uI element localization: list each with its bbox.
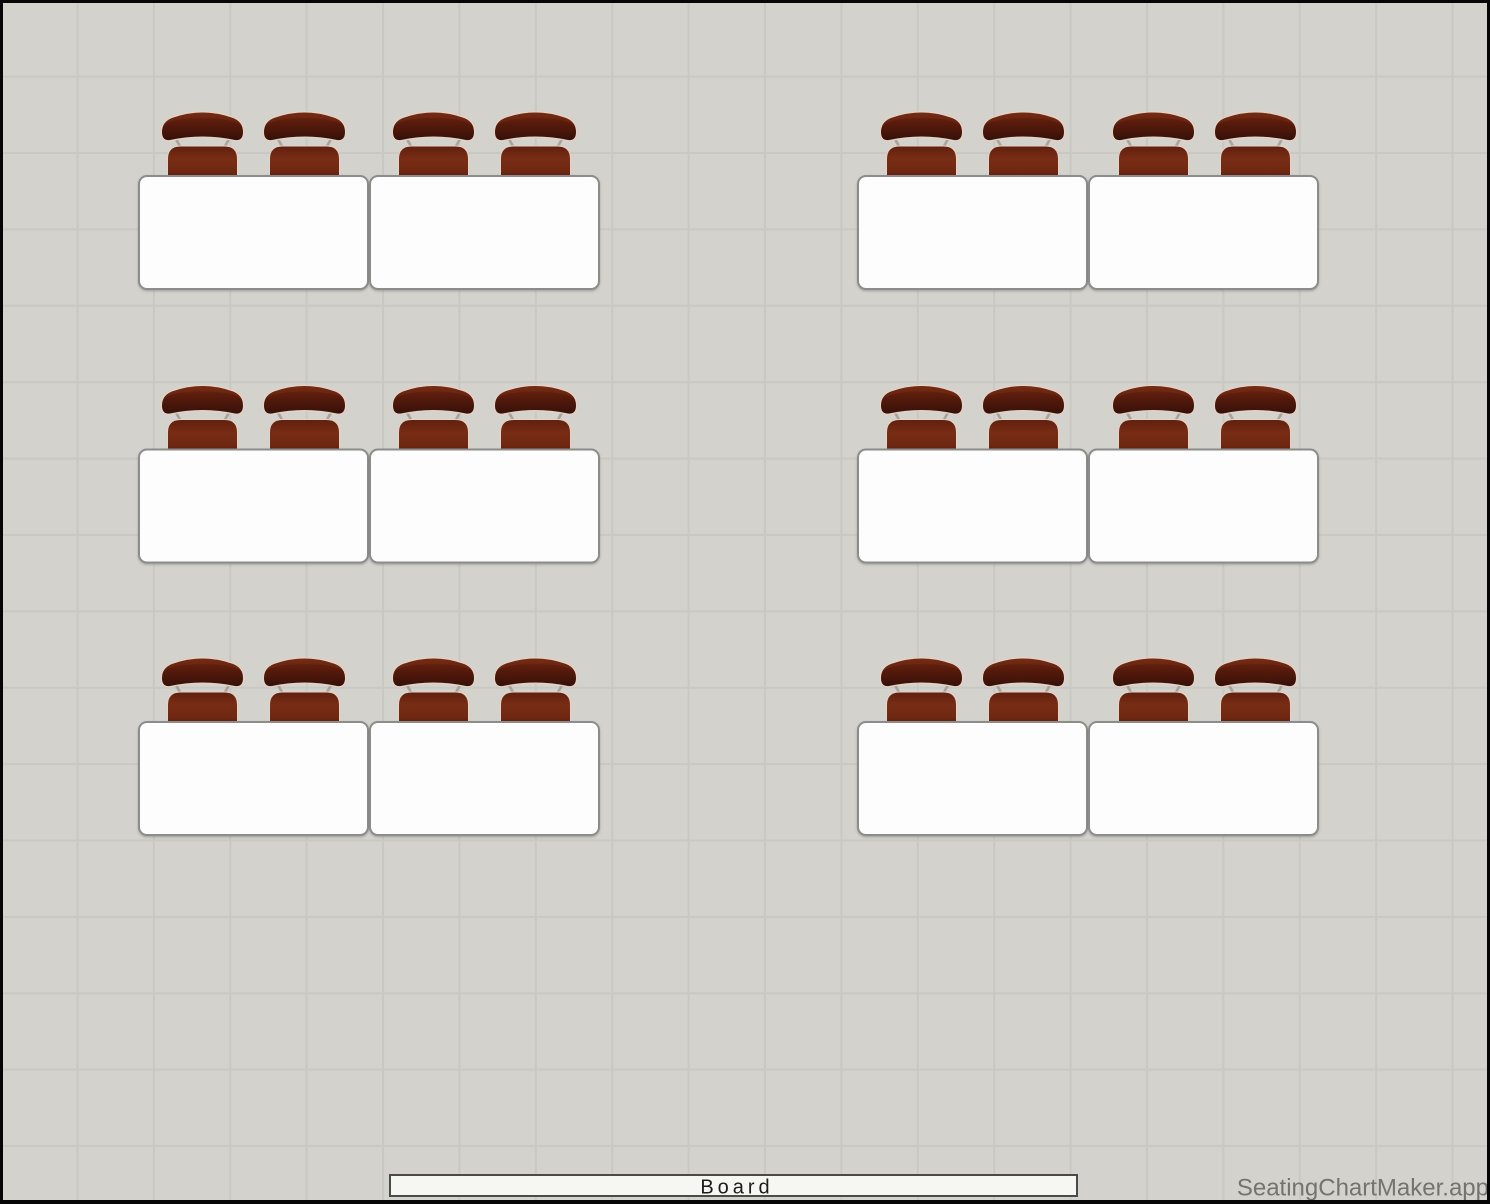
svg-text:SeatingChartMaker.app: SeatingChartMaker.app [1237,1175,1487,1201]
svg-text:Board: Board [700,1177,773,1199]
